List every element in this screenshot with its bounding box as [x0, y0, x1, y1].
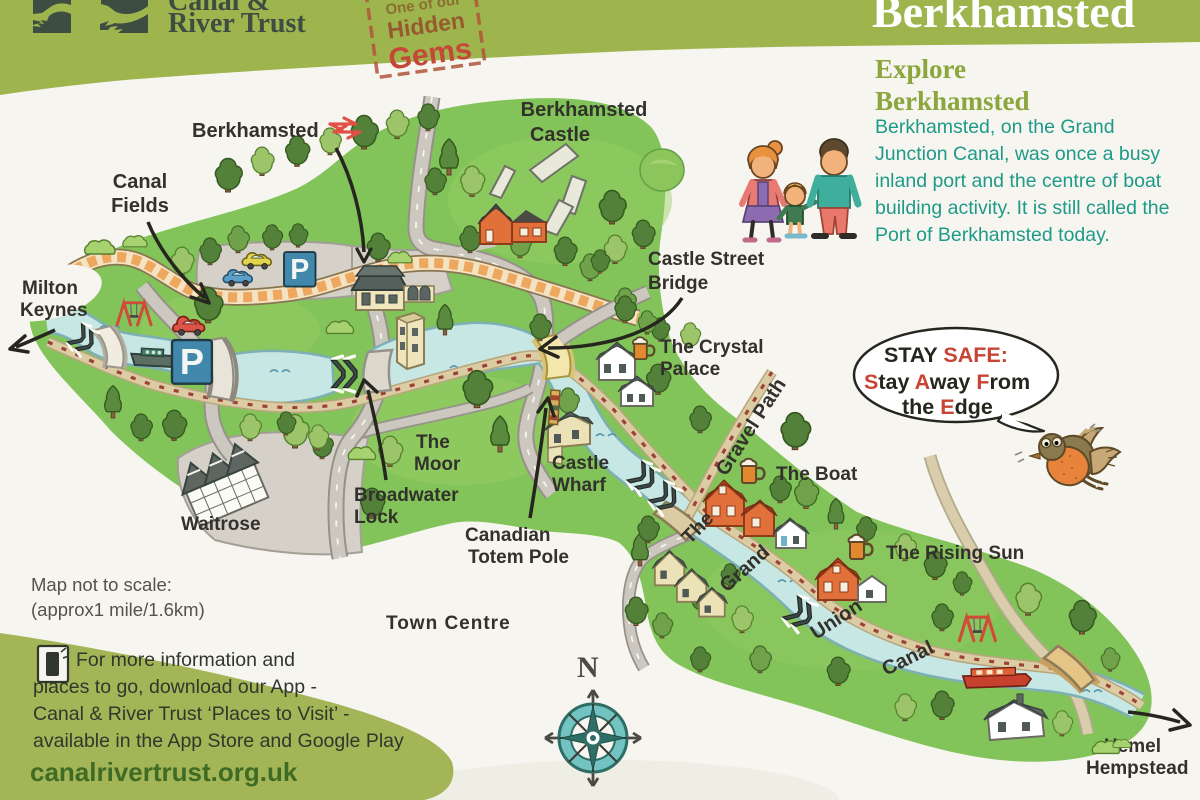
svg-text:Map not to scale:: Map not to scale: [31, 574, 172, 595]
svg-text:Stay Away From: Stay Away From [864, 370, 1030, 394]
svg-text:Explore: Explore [875, 54, 966, 84]
svg-text:canalrivertrust.org.uk: canalrivertrust.org.uk [30, 757, 298, 787]
svg-text:Hempstead: Hempstead [1086, 758, 1188, 779]
svg-text:Berkhamsted: Berkhamsted [872, 0, 1136, 37]
svg-text:The Rising Sun: The Rising Sun [886, 543, 1024, 564]
svg-text:Berkhamsted: Berkhamsted [521, 99, 648, 121]
svg-text:Town Centre: Town Centre [386, 613, 511, 634]
svg-text:Waitrose: Waitrose [181, 514, 261, 535]
svg-text:The Crystal: The Crystal [660, 337, 763, 358]
svg-text:Wharf: Wharf [552, 475, 607, 496]
svg-text:Castle: Castle [552, 453, 609, 474]
svg-text:For more information and: For more information and [76, 649, 295, 671]
svg-text:Castle: Castle [530, 124, 590, 146]
svg-text:Broadwater: Broadwater [354, 485, 459, 506]
svg-text:Keynes: Keynes [20, 300, 88, 321]
svg-text:The Boat: The Boat [776, 464, 858, 485]
svg-text:Totem Pole: Totem Pole [468, 547, 569, 568]
svg-text:Moor: Moor [414, 454, 461, 475]
svg-text:Junction Canal, was once a bus: Junction Canal, was once a busy [875, 143, 1160, 165]
svg-text:Lock: Lock [354, 507, 399, 528]
svg-text:Castle Street: Castle Street [648, 249, 765, 270]
svg-text:Palace: Palace [660, 359, 720, 380]
svg-text:Berkhamsted: Berkhamsted [875, 86, 1030, 116]
svg-text:Fields: Fields [111, 195, 169, 217]
svg-text:River Trust: River Trust [168, 8, 306, 39]
svg-text:Canadian: Canadian [465, 525, 551, 546]
svg-text:Berkhamsted, on the Grand: Berkhamsted, on the Grand [875, 116, 1115, 138]
svg-text:inland port and the centre of: inland port and the centre of boat [875, 170, 1162, 192]
svg-text:The: The [416, 432, 450, 453]
svg-text:places to go, download our App: places to go, download our App - [33, 676, 317, 698]
svg-text:Bridge: Bridge [648, 273, 708, 294]
svg-text:Canal & River Trust ‘Places to: Canal & River Trust ‘Places to Visit’ - [33, 703, 349, 725]
svg-text:Canal: Canal [113, 171, 167, 193]
svg-text:Milton: Milton [22, 278, 78, 299]
svg-text:STAY SAFE:: STAY SAFE: [884, 343, 1008, 367]
svg-text:the Edge: the Edge [902, 395, 993, 419]
svg-text:N: N [577, 651, 599, 684]
svg-text:building activity. It is still: building activity. It is still called th… [875, 197, 1169, 219]
svg-text:Port of Berkhamsted today.: Port of Berkhamsted today. [875, 224, 1110, 246]
svg-text:(approx1 mile/1.6km): (approx1 mile/1.6km) [31, 599, 205, 620]
svg-text:Berkhamsted: Berkhamsted [192, 120, 319, 142]
svg-text:available in the App Store and: available in the App Store and Google Pl… [33, 730, 404, 752]
